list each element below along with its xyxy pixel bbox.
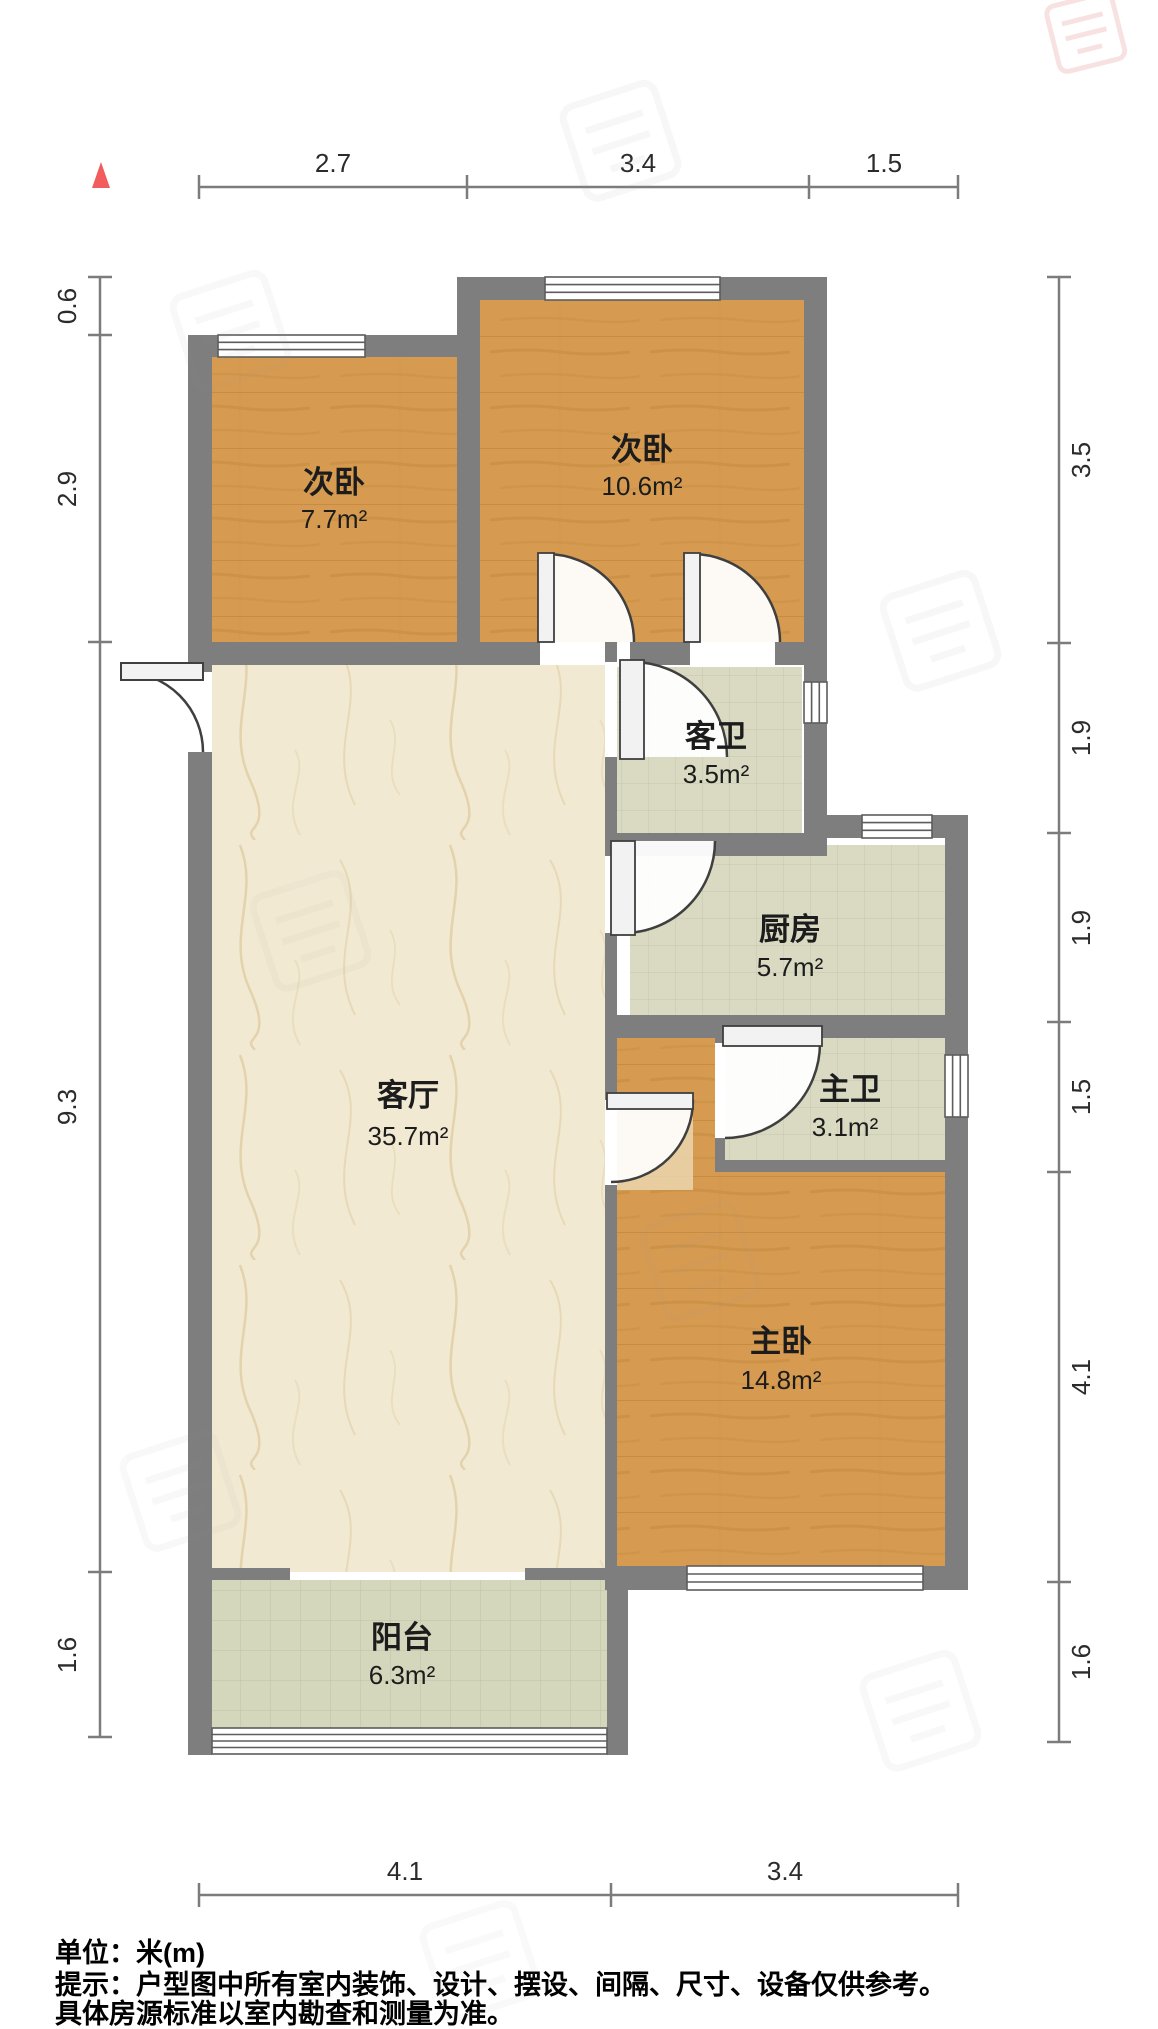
wall (605, 757, 617, 841)
room-label-kitchen: 厨房 (759, 912, 821, 947)
door-entrance (121, 663, 203, 752)
footer-unit: 单位：米(m) (55, 1937, 205, 1968)
room-area-kitchen: 5.7m² (757, 952, 824, 982)
room-area-guest-bath: 3.5m² (683, 759, 750, 789)
dim-top-1: 2.7 (315, 148, 351, 178)
watermark (1045, 0, 1126, 73)
floor-living-room (212, 665, 605, 1572)
room-label-master-bedroom: 主卧 (750, 1324, 812, 1359)
wall (804, 277, 827, 856)
wall (605, 642, 617, 662)
wall (945, 1038, 968, 1590)
dim-right-1: 3.5 (1066, 442, 1096, 478)
room-area-living: 35.7m² (368, 1121, 449, 1151)
wall (525, 1568, 617, 1580)
dim-right-2: 1.9 (1066, 720, 1096, 756)
dim-right-3: 1.9 (1066, 910, 1096, 946)
watermark (860, 1650, 981, 1771)
dim-top-3: 1.5 (866, 148, 902, 178)
window-master-bath (945, 1055, 968, 1117)
watermark (560, 80, 681, 201)
dimension-left (88, 277, 112, 1737)
room-label-balcony: 阳台 (371, 1620, 433, 1655)
dim-bottom-2: 3.4 (767, 1856, 803, 1886)
dimension-top (199, 175, 958, 199)
watermark (880, 570, 1001, 691)
dimension-bottom (199, 1883, 958, 1907)
room-label-master-bath: 主卫 (819, 1072, 881, 1107)
room-label-living: 客厅 (377, 1078, 439, 1113)
wall (457, 277, 480, 665)
wall (212, 1568, 290, 1580)
dim-left-1: 0.6 (52, 288, 82, 324)
window-kitchen (862, 815, 932, 838)
wall (188, 752, 212, 1755)
window-bedroom-large (545, 277, 720, 300)
wall (715, 1138, 725, 1172)
wall (607, 1580, 628, 1755)
dimension-right (1047, 277, 1071, 1742)
footer-disclaimer-1: 提示：户型图中所有室内装饰、设计、摆设、间隔、尺寸、设备仅供参考。 (55, 1969, 946, 2000)
room-label-guest-bath: 客卫 (685, 719, 747, 754)
wall (945, 815, 968, 1038)
dim-left-2: 2.9 (52, 471, 82, 507)
window-master-bedroom (687, 1566, 923, 1590)
wall (188, 642, 540, 665)
wall (605, 933, 617, 1100)
dim-right-6: 1.6 (1066, 1644, 1096, 1680)
north-indicator-icon (92, 162, 110, 188)
window-balcony (212, 1728, 607, 1754)
dim-left-3: 9.3 (52, 1089, 82, 1125)
dim-right-5: 4.1 (1066, 1359, 1096, 1395)
room-area-bedroom-large: 10.6m² (602, 471, 683, 501)
room-area-balcony: 6.3m² (369, 1660, 436, 1690)
room-area-master-bath: 3.1m² (812, 1112, 879, 1142)
room-area-master-bedroom: 14.8m² (741, 1365, 822, 1395)
window-guest-bath (804, 682, 827, 723)
room-area-bedroom-small: 7.7m² (301, 504, 368, 534)
dim-bottom-1: 4.1 (387, 1856, 423, 1886)
dim-left-4: 1.6 (52, 1637, 82, 1673)
room-label-bedroom-small: 次卧 (303, 465, 365, 500)
floor-plan: 次卧 7.7m² 次卧 10.6m² 客卫 3.5m² 厨房 5.7m² 主卫 … (0, 0, 1158, 2029)
wall (715, 1160, 945, 1172)
dim-right-4: 1.5 (1066, 1079, 1096, 1115)
wall (605, 1185, 617, 1590)
room-label-bedroom-large: 次卧 (611, 432, 673, 467)
